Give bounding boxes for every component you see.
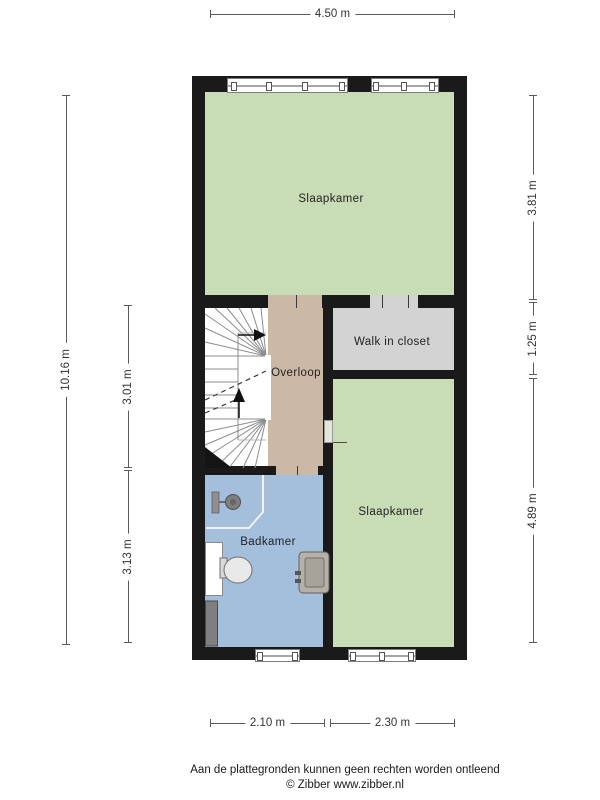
room-label-closet: Walk in closet <box>354 336 430 348</box>
dimension-bottom-right: 2.30 m <box>330 723 455 724</box>
door-swing-tick <box>333 442 347 443</box>
dimension-right-bottom: 4.89 m <box>533 378 534 643</box>
stair-landing-edge <box>265 355 271 420</box>
window-top-right <box>371 78 439 93</box>
door-opening-bedroom-top-closet <box>370 295 418 308</box>
window-top-left <box>227 78 348 93</box>
dimension-left-mid: 3.01 m <box>128 305 129 468</box>
dimension-label: 4.89 m <box>527 487 539 534</box>
room-label-landing: Overloop <box>271 367 321 379</box>
stair-corner-wall <box>205 447 232 468</box>
window-bottom-right <box>348 649 416 662</box>
room-label-bedroom-bottom: Slaapkamer <box>358 506 423 518</box>
dimension-label: 3.01 m <box>122 363 134 410</box>
door-landing-bedroom-bottom <box>324 420 333 443</box>
room-landing <box>268 308 323 466</box>
door-opening-bedroom-top-landing <box>268 295 322 308</box>
dimension-right-mid: 1.25 m <box>533 302 534 375</box>
stair-walk-line <box>205 371 266 413</box>
room-label-bathroom: Badkamer <box>240 536 296 548</box>
bathroom-fixtures <box>205 475 330 647</box>
dimension-label: 1.25 m <box>527 315 539 362</box>
floorplan-page: Slaapkamer Overloop Walk in closet Badka… <box>0 0 600 800</box>
duct <box>206 601 218 646</box>
dimension-right-top: 3.81 m <box>533 95 534 300</box>
footer: Aan de plattegronden kunnen geen rechten… <box>190 763 499 793</box>
dimension-label: 10.16 m <box>60 343 72 397</box>
dimension-left-bottom: 3.13 m <box>128 470 129 643</box>
shower-bracket-icon <box>212 492 219 513</box>
dimension-label: 4.50 m <box>310 8 355 20</box>
stairs <box>205 308 271 468</box>
dimension-label: 3.13 m <box>122 533 134 580</box>
dimension-top: 4.50 m <box>210 14 455 15</box>
faucet-icon <box>295 571 301 575</box>
footer-credit: © Zibber www.zibber.nl <box>190 778 499 793</box>
wall-below-closet <box>333 370 454 379</box>
door-opening-landing-bathroom <box>276 466 318 475</box>
dimension-bottom-left: 2.10 m <box>210 723 325 724</box>
footer-disclaimer: Aan de plattegronden kunnen geen rechten… <box>190 763 499 778</box>
dimension-label: 2.30 m <box>370 717 415 729</box>
room-label-bedroom-top: Slaapkamer <box>298 193 363 205</box>
toilet-icon <box>224 557 252 583</box>
dimension-label: 3.81 m <box>527 174 539 221</box>
dimension-label: 2.10 m <box>245 717 290 729</box>
window-bottom-left <box>255 649 300 662</box>
dimension-left-total: 10.16 m <box>66 95 67 645</box>
